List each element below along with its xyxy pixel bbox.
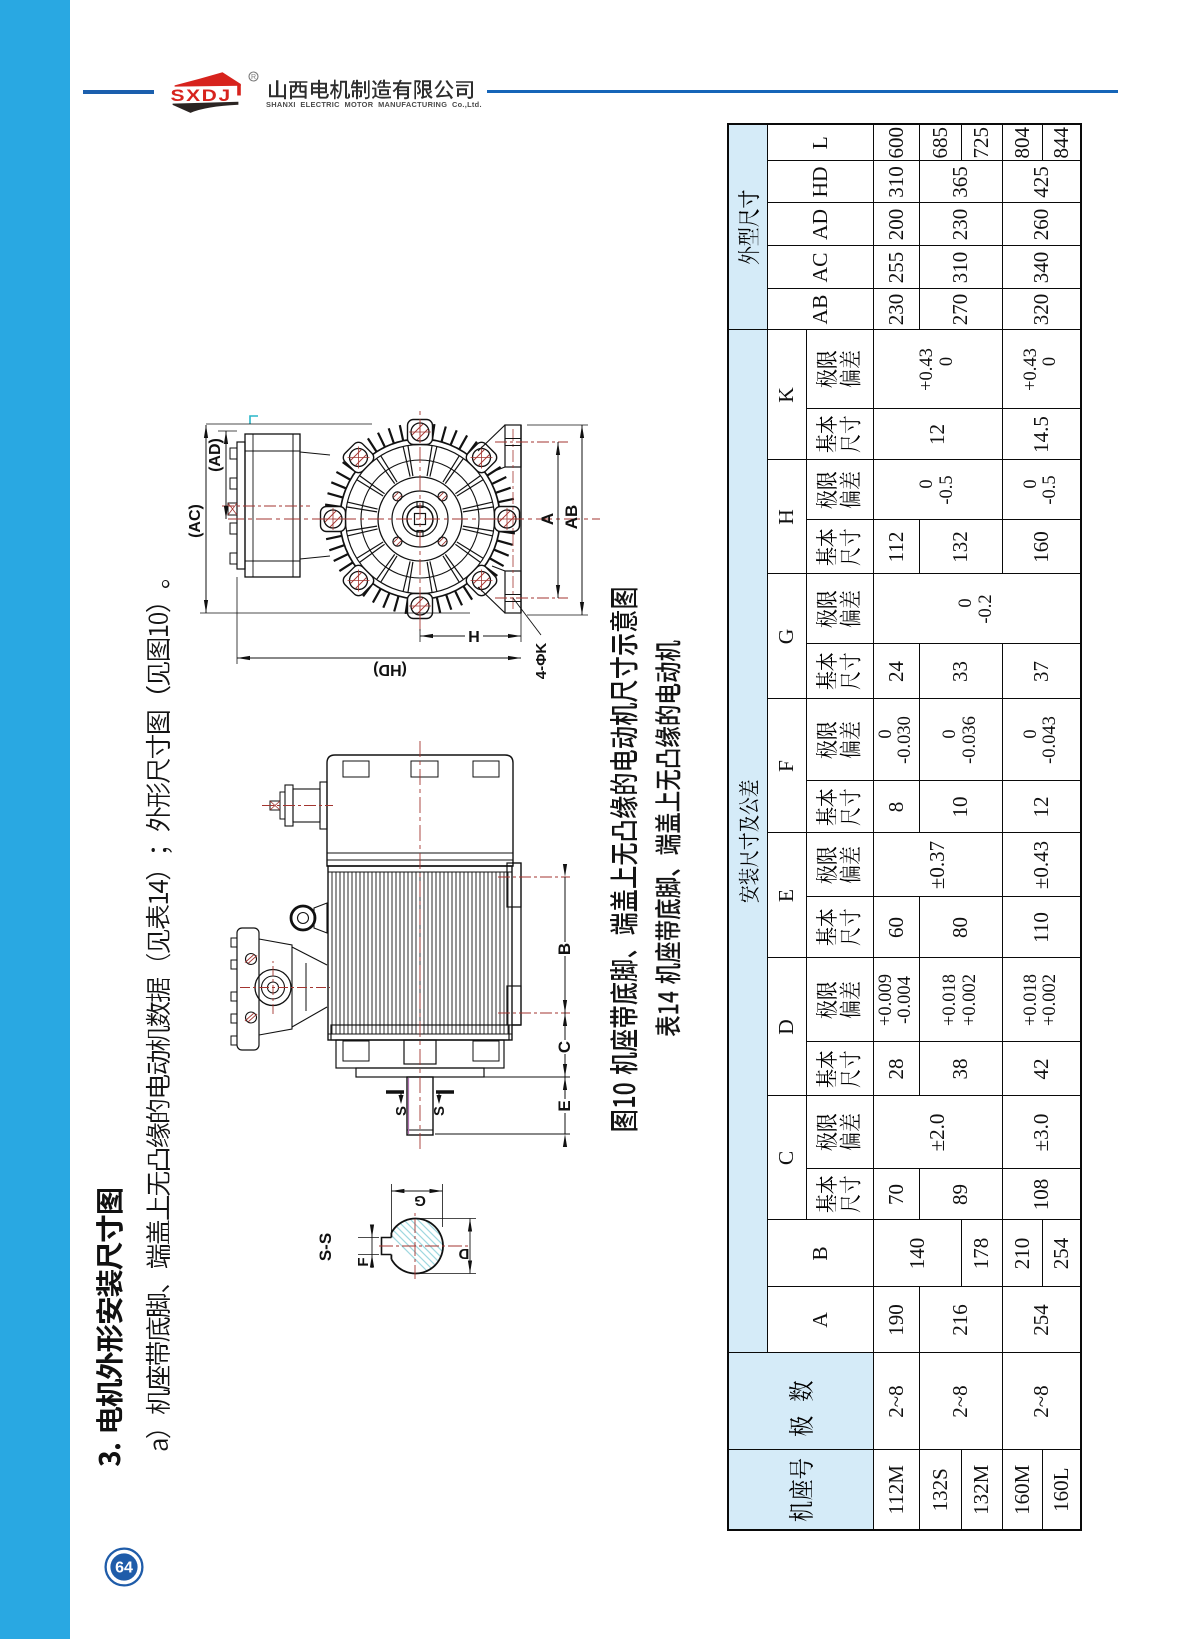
svg-text:A: A — [538, 513, 557, 525]
svg-text:F: F — [355, 1257, 372, 1266]
svg-text:(AD): (AD) — [207, 438, 224, 472]
svg-text:E: E — [555, 1100, 574, 1111]
svg-text:S-S: S-S — [316, 1233, 335, 1261]
svg-text:4-ΦK: 4-ΦK — [533, 643, 550, 680]
svg-text:S: S — [431, 1106, 448, 1116]
svg-text:(HD): (HD) — [373, 661, 407, 678]
svg-text:H: H — [468, 627, 480, 644]
svg-text:G: G — [414, 1192, 426, 1209]
svg-text:AB: AB — [562, 505, 581, 530]
svg-text:C: C — [555, 1041, 574, 1053]
svg-text:S: S — [393, 1106, 410, 1116]
svg-text:(AC): (AC) — [187, 504, 204, 538]
svg-text:D: D — [458, 1245, 469, 1262]
svg-text:B: B — [555, 943, 574, 955]
